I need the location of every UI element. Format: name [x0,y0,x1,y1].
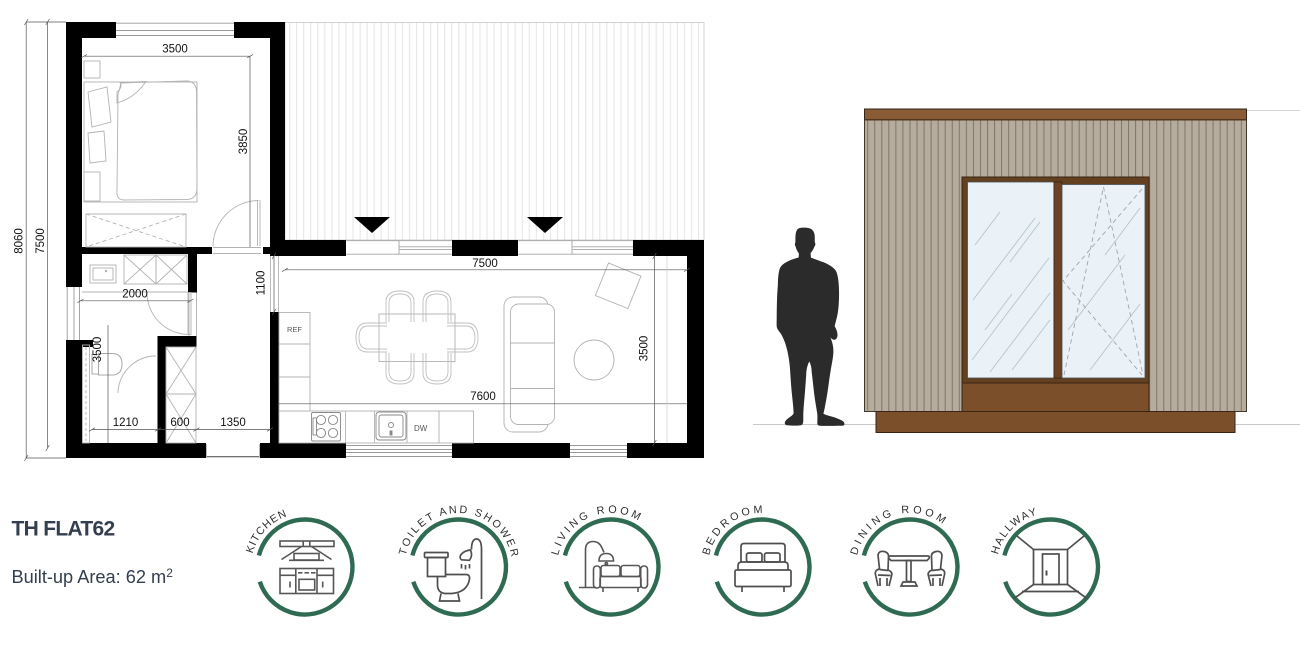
svg-text:7500: 7500 [472,258,498,270]
svg-text:2000: 2000 [122,289,148,301]
svg-text:1100: 1100 [256,271,268,296]
svg-text:3500: 3500 [92,337,104,363]
svg-text:8060: 8060 [14,228,26,254]
svg-text:DW: DW [414,424,428,433]
svg-text:REF: REF [287,325,302,334]
svg-text:1210: 1210 [113,417,139,429]
svg-text:KITCHEN: KITCHEN [244,507,289,554]
svg-text:DINING ROOM: DINING ROOM [848,504,950,557]
svg-text:1350: 1350 [220,417,246,429]
svg-text:3850: 3850 [238,129,250,155]
svg-text:7500: 7500 [35,228,47,254]
svg-text:7600: 7600 [470,391,496,403]
svg-text:3500: 3500 [639,336,651,362]
svg-text:600: 600 [170,417,189,429]
svg-text:Built-up Area: 62 m2: Built-up Area: 62 m2 [12,566,174,587]
svg-text:LIVING ROOM: LIVING ROOM [549,504,645,557]
svg-text:TH FLAT62: TH FLAT62 [12,518,115,541]
svg-text:3500: 3500 [162,44,188,56]
